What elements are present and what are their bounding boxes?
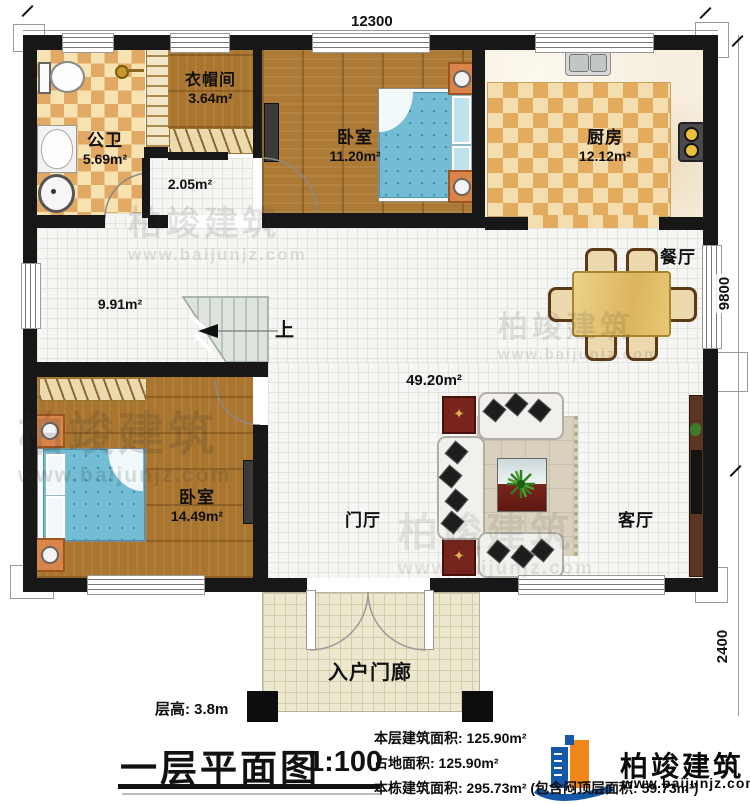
wall <box>262 213 485 228</box>
wall <box>253 425 268 578</box>
room-label-kitchen: 厨房12.12m² <box>560 128 650 164</box>
bedroom-bottom-door-arc <box>215 380 260 425</box>
wall <box>23 578 87 592</box>
window <box>170 33 230 53</box>
wall <box>37 215 105 228</box>
window <box>62 33 114 53</box>
wall <box>663 578 718 592</box>
wall <box>23 35 37 263</box>
wall <box>168 152 228 160</box>
floor-plan: ✦ ✦ <box>0 0 750 804</box>
porch-column-right <box>462 691 493 722</box>
dimension-top-label: 12300 <box>348 13 396 30</box>
room-label-hallway: 2.05m² <box>150 176 230 192</box>
entry-door-arc-left <box>310 592 368 650</box>
room-label-bedroom-top: 卧室11.20m² <box>310 128 400 164</box>
wall <box>203 578 307 592</box>
stairs-up-label: 上 <box>272 320 298 342</box>
window <box>312 33 430 53</box>
room-label-foyer: 门厅 <box>340 511 386 531</box>
wall <box>142 158 150 218</box>
porch-column-left <box>247 691 278 722</box>
staircase <box>183 297 278 362</box>
stat-footprint-area: 占地面积: 125.90m² <box>374 753 498 773</box>
wall <box>112 35 170 50</box>
wall <box>428 35 535 50</box>
wall <box>703 35 718 245</box>
plant <box>507 470 535 498</box>
wall <box>472 50 485 213</box>
floor-height-label: 层高: 3.8m <box>155 698 228 719</box>
brand-website: www.baijunjz.com <box>622 775 750 791</box>
wall <box>148 215 168 228</box>
dimension-right-main-label: 9800 <box>716 274 733 313</box>
wall <box>485 217 528 230</box>
plan-scale: 1:100 <box>308 746 382 779</box>
wall <box>659 217 703 230</box>
window <box>535 33 654 53</box>
title-underline-thin <box>122 793 380 795</box>
open-living-area-label: 49.20m² <box>392 372 476 389</box>
entry-door-arc-right <box>368 592 426 650</box>
dimension-right-porch-label: 2400 <box>714 627 731 666</box>
wall <box>430 578 518 592</box>
room-label-corridor: 9.91m² <box>80 296 160 312</box>
window <box>518 575 665 595</box>
wall <box>228 35 312 50</box>
bedroom-top-door-arc <box>262 158 317 213</box>
stat-floor-area: 本层建筑面积: 125.90m² <box>374 728 526 748</box>
room-label-bathroom: 公卫5.69m² <box>60 131 150 167</box>
room-label-cloakroom: 衣帽间3.64m² <box>163 72 258 106</box>
entry-door-leaf-left <box>306 590 316 650</box>
room-label-living: 客厅 <box>613 511 659 531</box>
room-label-porch: 入户门廊 <box>310 662 430 685</box>
title-underline-thick <box>118 784 380 789</box>
wall <box>23 362 268 377</box>
room-label-dining: 餐厅 <box>655 248 701 268</box>
entry-door-leaf-right <box>424 590 434 650</box>
window <box>21 263 41 329</box>
window <box>87 575 205 595</box>
wall <box>703 347 718 592</box>
room-label-bedroom-bottom: 卧室14.49m² <box>152 488 242 524</box>
